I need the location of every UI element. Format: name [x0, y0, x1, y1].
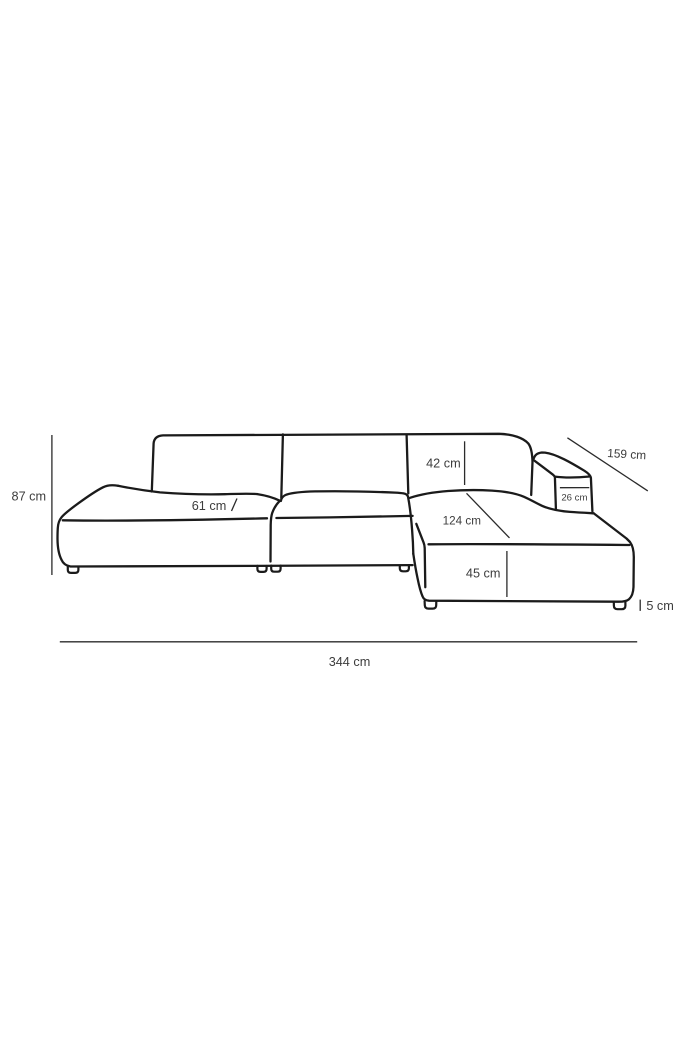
svg-text:344 cm: 344 cm [329, 655, 371, 669]
svg-text:159 cm: 159 cm [607, 446, 647, 462]
svg-text:42 cm: 42 cm [426, 457, 461, 471]
svg-text:61 cm: 61 cm [192, 499, 227, 513]
svg-text:45 cm: 45 cm [466, 567, 501, 581]
svg-text:124 cm: 124 cm [443, 514, 481, 527]
svg-text:87 cm: 87 cm [12, 489, 47, 503]
svg-text:5 cm: 5 cm [646, 599, 674, 613]
svg-text:26 cm: 26 cm [561, 493, 587, 504]
